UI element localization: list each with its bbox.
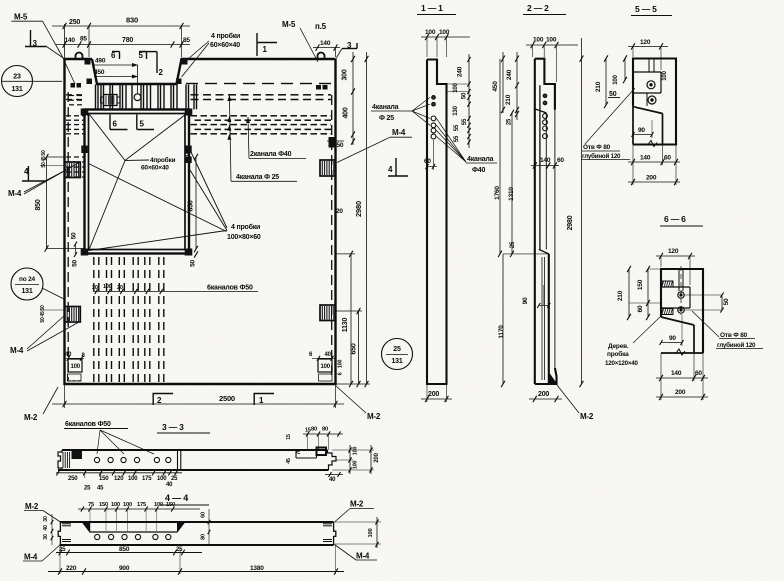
svg-text:100: 100	[425, 29, 436, 36]
svg-text:40: 40	[329, 477, 336, 483]
svg-text:100: 100	[321, 364, 331, 370]
svg-text:210: 210	[617, 290, 624, 301]
svg-text:Ф40: Ф40	[472, 167, 485, 174]
svg-text:300: 300	[342, 69, 349, 80]
svg-text:45: 45	[41, 156, 47, 162]
svg-text:140: 140	[65, 37, 76, 44]
svg-text:175: 175	[142, 476, 152, 482]
svg-text:глубиной 120: глубиной 120	[717, 342, 756, 349]
svg-text:50: 50	[72, 260, 79, 267]
svg-text:M-2: M-2	[24, 413, 38, 422]
svg-text:25: 25	[176, 547, 183, 553]
svg-text:2500: 2500	[219, 394, 235, 403]
svg-text:80: 80	[311, 427, 317, 433]
svg-text:150: 150	[99, 502, 108, 508]
svg-text:175: 175	[137, 502, 147, 508]
svg-text:23: 23	[13, 74, 21, 81]
svg-text:120: 120	[668, 248, 679, 255]
svg-text:240: 240	[457, 66, 464, 77]
svg-text:80: 80	[201, 534, 207, 540]
svg-text:25: 25	[510, 241, 516, 248]
svg-text:140: 140	[640, 155, 651, 162]
svg-text:6 — 6: 6 — 6	[664, 214, 686, 224]
svg-text:60×60×40: 60×60×40	[210, 42, 240, 49]
svg-text:M-2: M-2	[350, 500, 364, 509]
svg-text:60: 60	[557, 157, 564, 164]
svg-text:100: 100	[103, 284, 112, 290]
svg-text:M-5: M-5	[282, 20, 296, 29]
svg-text:150: 150	[637, 279, 644, 290]
svg-text:210: 210	[595, 81, 602, 92]
svg-text:90: 90	[669, 335, 676, 342]
svg-text:100: 100	[154, 502, 163, 508]
svg-text:M-4: M-4	[356, 552, 370, 561]
svg-text:15: 15	[286, 434, 292, 440]
svg-text:4канала: 4канала	[467, 156, 494, 163]
svg-text:п.5: п.5	[315, 22, 327, 31]
svg-text:пробка: пробка	[607, 350, 629, 358]
svg-text:90: 90	[638, 127, 645, 134]
svg-text:4канала: 4канала	[372, 104, 399, 111]
svg-text:250: 250	[68, 476, 78, 482]
svg-text:450: 450	[94, 69, 105, 76]
svg-text:30: 30	[43, 516, 49, 522]
svg-text:6каналов Ф50: 6каналов Ф50	[207, 285, 253, 292]
svg-text:100: 100	[123, 502, 132, 508]
svg-text:M-4: M-4	[392, 128, 406, 137]
svg-text:60×60×40: 60×60×40	[141, 165, 169, 172]
svg-text:75: 75	[88, 502, 95, 508]
svg-text:100: 100	[439, 29, 450, 36]
svg-text:100: 100	[533, 37, 544, 44]
svg-text:240: 240	[506, 69, 513, 80]
svg-text:140: 140	[540, 157, 551, 164]
svg-text:60: 60	[695, 370, 702, 377]
svg-text:130: 130	[453, 105, 459, 115]
svg-text:50: 50	[40, 317, 46, 323]
svg-text:85: 85	[80, 36, 87, 43]
svg-text:1310: 1310	[508, 187, 515, 201]
svg-text:M-2: M-2	[367, 412, 381, 421]
svg-text:100×80×60: 100×80×60	[227, 234, 261, 241]
svg-text:250: 250	[69, 19, 80, 26]
svg-text:200: 200	[646, 175, 657, 182]
svg-text:20: 20	[117, 285, 123, 291]
svg-text:50: 50	[337, 142, 344, 149]
svg-text:100: 100	[613, 74, 619, 84]
svg-text:40: 40	[166, 482, 173, 488]
svg-text:50: 50	[609, 91, 617, 98]
svg-text:120×120×40: 120×120×40	[605, 360, 639, 367]
svg-text:4пробки: 4пробки	[150, 156, 176, 164]
svg-text:900: 900	[119, 565, 130, 572]
svg-text:650: 650	[351, 343, 358, 354]
svg-text:M-4: M-4	[24, 553, 38, 562]
svg-text:200: 200	[428, 391, 439, 398]
svg-text:220: 220	[66, 565, 77, 572]
svg-text:25: 25	[393, 346, 401, 353]
svg-text:50: 50	[41, 150, 47, 156]
svg-text:400: 400	[343, 107, 350, 118]
svg-text:100: 100	[338, 360, 344, 369]
svg-text:131: 131	[11, 86, 22, 93]
svg-text:2 — 2: 2 — 2	[527, 3, 549, 13]
svg-text:200: 200	[675, 389, 686, 396]
svg-text:глубиной 120: глубиной 120	[582, 153, 621, 160]
svg-text:25: 25	[84, 486, 91, 492]
svg-text:100: 100	[546, 37, 557, 44]
svg-text:131: 131	[21, 288, 32, 295]
svg-text:100: 100	[353, 461, 359, 470]
svg-text:100: 100	[71, 364, 81, 370]
svg-text:60: 60	[637, 305, 644, 312]
svg-text:150: 150	[166, 502, 175, 508]
svg-text:50: 50	[462, 92, 468, 99]
svg-text:3 — 3: 3 — 3	[162, 422, 184, 432]
svg-text:60: 60	[664, 155, 671, 162]
svg-text:140: 140	[320, 40, 331, 47]
svg-text:20: 20	[92, 285, 98, 291]
svg-text:50: 50	[71, 232, 78, 239]
svg-text:140: 140	[671, 370, 682, 377]
svg-text:1760: 1760	[494, 186, 501, 200]
svg-text:210: 210	[505, 94, 512, 105]
svg-text:4канала Ф 25: 4канала Ф 25	[236, 174, 279, 181]
svg-text:45: 45	[40, 311, 46, 317]
svg-text:40: 40	[43, 525, 49, 531]
svg-text:850: 850	[188, 200, 195, 211]
svg-text:M-4: M-4	[8, 189, 22, 198]
svg-text:40: 40	[325, 352, 332, 358]
svg-text:55: 55	[454, 135, 460, 142]
svg-text:30: 30	[43, 534, 49, 540]
svg-text:Дерев.: Дерев.	[608, 343, 629, 350]
svg-text:4 пробки: 4 пробки	[211, 32, 240, 40]
svg-text:Ф 25: Ф 25	[379, 115, 394, 122]
svg-text:850: 850	[119, 546, 130, 553]
svg-text:1130: 1130	[342, 318, 349, 333]
svg-text:6каналов Ф50: 6каналов Ф50	[65, 421, 111, 428]
svg-text:Отв Ф 80: Отв Ф 80	[720, 332, 748, 339]
svg-text:20: 20	[336, 208, 343, 215]
svg-text:1380: 1380	[250, 565, 264, 572]
svg-text:90: 90	[522, 297, 529, 304]
svg-text:2980: 2980	[354, 201, 363, 217]
svg-text:150: 150	[99, 476, 109, 482]
svg-text:4 пробки: 4 пробки	[231, 223, 260, 231]
svg-text:M-2: M-2	[580, 412, 594, 421]
svg-text:5 — 5: 5 — 5	[635, 4, 657, 14]
svg-text:131: 131	[391, 358, 402, 365]
svg-text:780: 780	[122, 37, 133, 44]
svg-text:M-5: M-5	[14, 13, 28, 22]
svg-text:70: 70	[296, 449, 302, 455]
svg-text:100: 100	[368, 528, 374, 537]
svg-text:850: 850	[35, 199, 42, 210]
svg-text:120: 120	[640, 39, 651, 46]
svg-text:120: 120	[114, 476, 124, 482]
svg-text:100: 100	[353, 447, 359, 456]
svg-text:60: 60	[201, 512, 207, 518]
svg-text:100: 100	[128, 476, 138, 482]
svg-text:450: 450	[492, 81, 499, 92]
svg-text:2канала Ф40: 2канала Ф40	[250, 151, 292, 158]
svg-text:100: 100	[185, 149, 191, 158]
svg-text:490: 490	[95, 58, 106, 65]
svg-text:1 — 1: 1 — 1	[421, 3, 443, 13]
svg-text:80: 80	[322, 427, 328, 433]
svg-text:M-4: M-4	[10, 346, 24, 355]
svg-text:45: 45	[286, 458, 292, 464]
svg-text:Отв Ф 80: Отв Ф 80	[583, 144, 611, 151]
svg-text:50: 50	[41, 162, 47, 168]
svg-text:60: 60	[424, 158, 431, 165]
svg-text:830: 830	[126, 16, 138, 25]
svg-text:55: 55	[454, 124, 460, 131]
svg-text:50: 50	[190, 260, 197, 267]
svg-text:по 24: по 24	[19, 276, 36, 283]
svg-text:100: 100	[111, 502, 120, 508]
svg-text:2980: 2980	[567, 215, 574, 230]
svg-text:200: 200	[374, 452, 380, 462]
svg-text:1170: 1170	[498, 325, 505, 339]
svg-text:55: 55	[462, 118, 468, 125]
svg-text:15: 15	[305, 428, 311, 434]
svg-text:200: 200	[538, 391, 549, 398]
svg-text:M-2: M-2	[25, 502, 39, 511]
svg-text:45: 45	[97, 486, 104, 492]
svg-text:50: 50	[723, 298, 730, 305]
svg-text:6: 6	[338, 372, 344, 375]
svg-text:85: 85	[183, 37, 190, 44]
svg-text:100: 100	[662, 70, 668, 80]
